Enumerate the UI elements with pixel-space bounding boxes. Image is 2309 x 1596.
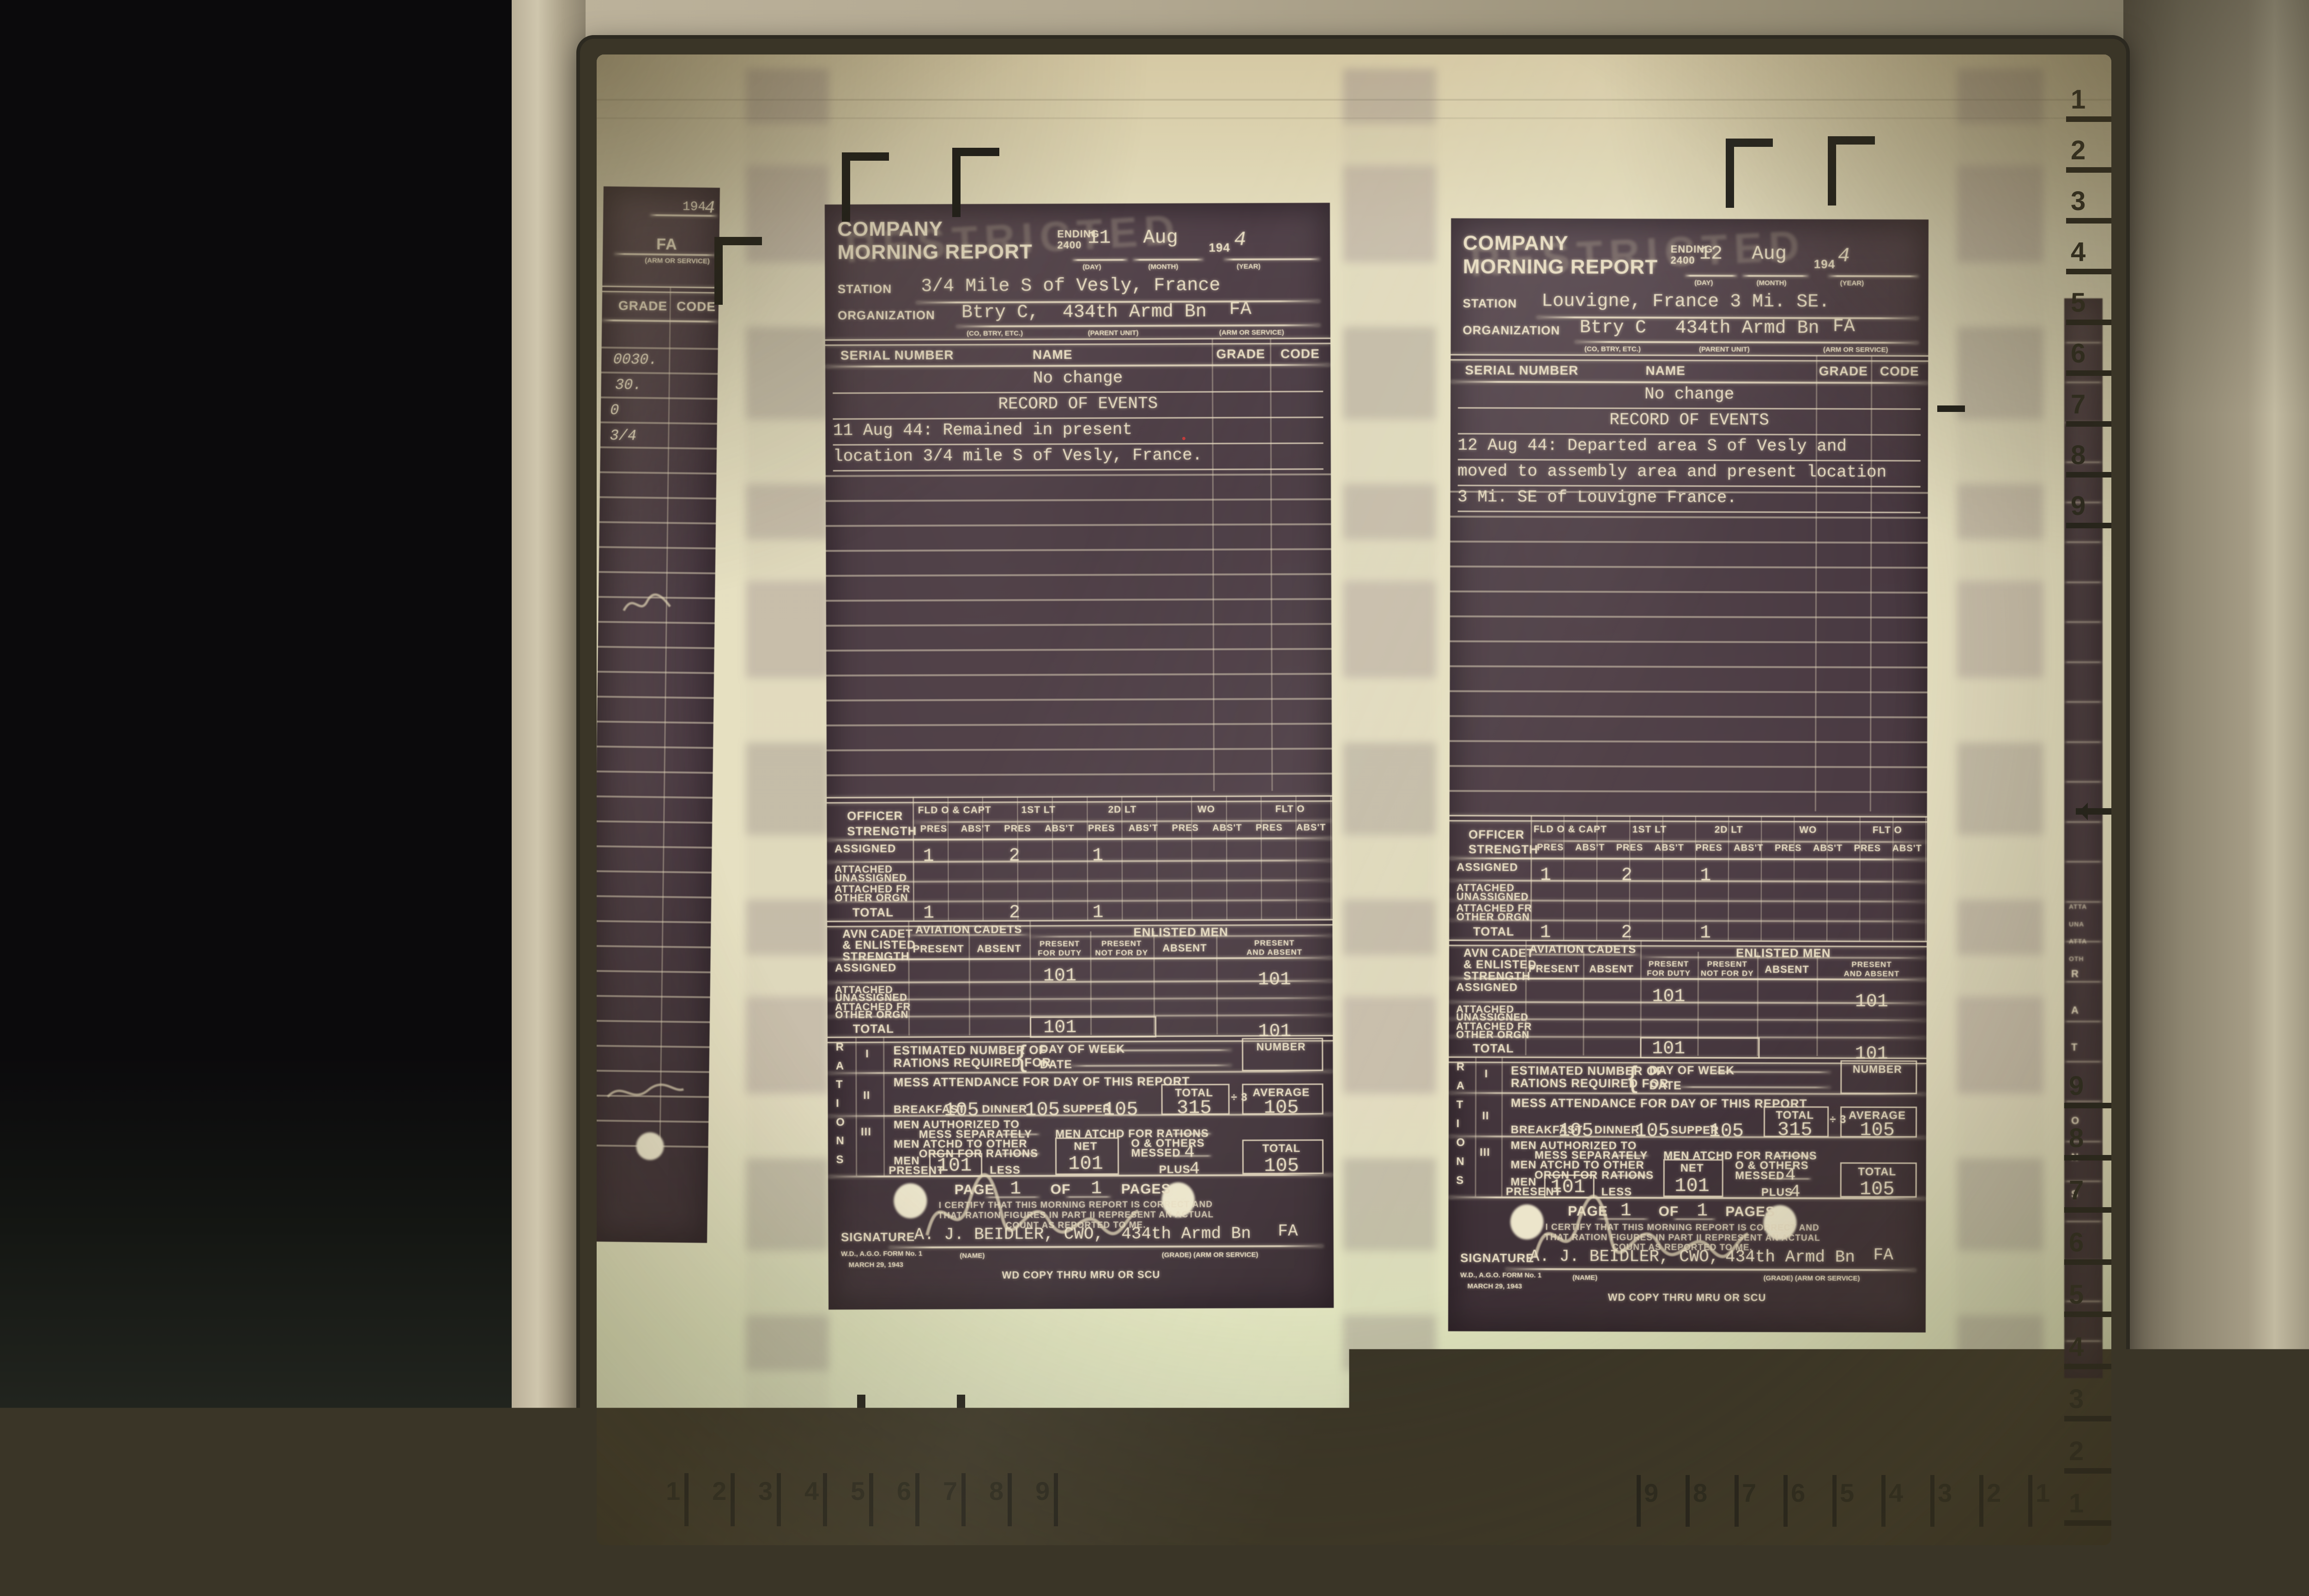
ruler-tick xyxy=(961,1473,966,1526)
machine-left-frame xyxy=(512,0,586,1596)
ruler-tick xyxy=(2064,1259,2111,1265)
ruler-tick xyxy=(1881,1475,1886,1527)
ruler-number: 6 xyxy=(897,1476,911,1506)
ruler-tick xyxy=(2064,1468,2111,1474)
ruler-tick xyxy=(2066,167,2111,173)
ruler-tick xyxy=(1832,1475,1837,1527)
ruler-number: 1 xyxy=(2069,1488,2084,1519)
ruler-number: 3 xyxy=(1938,1478,1952,1508)
ruler-tick xyxy=(2066,116,2111,122)
ruler-tick xyxy=(684,1473,689,1526)
ruler-tick xyxy=(2066,370,2111,376)
ruler-tick xyxy=(1735,1475,1739,1527)
ruler-number: 2 xyxy=(2069,1436,2084,1467)
ruler-tick xyxy=(2066,523,2111,528)
ruler-tick xyxy=(2064,1207,2111,1213)
microfilm-reader-scene: Roll 194 4 FA (ARM OR SERVICE) GRADE COD… xyxy=(0,0,2309,1596)
ruler-number: 8 xyxy=(2071,440,2085,471)
ruler-tick xyxy=(2066,320,2111,325)
ruler-tick xyxy=(1686,1475,1690,1527)
roll-film-button[interactable]: Roll xyxy=(289,1509,368,1596)
ruler-number: 3 xyxy=(758,1476,773,1506)
ruler-number: 3 xyxy=(2071,186,2085,217)
ruler-tick xyxy=(2028,1475,2032,1527)
ruler-number: 5 xyxy=(2071,287,2085,318)
machine-side-panel xyxy=(368,1513,512,1596)
ruler-tick xyxy=(2064,1416,2111,1421)
ruler-number: 1 xyxy=(2071,84,2085,115)
ruler-number: 4 xyxy=(804,1476,819,1506)
ruler-number: 9 xyxy=(1644,1478,1658,1508)
ruler-number: 6 xyxy=(2071,338,2085,369)
ruler-tick xyxy=(777,1473,781,1526)
machine-top-frame xyxy=(512,0,2309,44)
projection-screen: 194 4 FA (ARM OR SERVICE) GRADE CODE 003… xyxy=(597,54,2111,1545)
ruler-tick xyxy=(1783,1475,1788,1527)
ruler-tick xyxy=(731,1473,735,1526)
ruler-number: 3 xyxy=(2069,1384,2084,1415)
ruler-tick xyxy=(1979,1475,1983,1527)
ruler-tick xyxy=(869,1473,873,1526)
light-spill xyxy=(194,1469,305,1596)
ruler-number: 1 xyxy=(666,1476,680,1506)
ruler-number: 6 xyxy=(2069,1227,2084,1258)
ruler-tick xyxy=(1637,1475,1641,1527)
ruler-number: 4 xyxy=(2071,236,2085,267)
ruler-tick xyxy=(823,1473,827,1526)
ruler-number: 5 xyxy=(2069,1279,2084,1310)
ruler-tick xyxy=(2066,218,2111,224)
ruler-number: 1 xyxy=(2036,1478,2050,1508)
ruler-number: 4 xyxy=(1889,1478,1903,1508)
ruler-tick xyxy=(2066,472,2111,478)
ruler-number: 4 xyxy=(2069,1331,2084,1362)
ruler-number: 5 xyxy=(851,1476,865,1506)
ruler-tick xyxy=(1054,1473,1058,1526)
ruler-tick xyxy=(1930,1475,1934,1527)
ruler-number: 9 xyxy=(2069,1070,2084,1101)
ruler-tick xyxy=(2064,1364,2111,1369)
machine-right-shadow xyxy=(2123,0,2309,416)
measurement-rulers: 123456789987654321123456789987654321 xyxy=(597,54,2111,1545)
ruler-tick xyxy=(2066,269,2111,274)
ruler-number: 2 xyxy=(712,1476,726,1506)
dark-room-background xyxy=(0,0,512,1596)
ruler-number: 9 xyxy=(2071,490,2085,521)
ruler-tick xyxy=(915,1473,919,1526)
ruler-tick xyxy=(2066,421,2111,427)
ruler-number: 7 xyxy=(943,1476,957,1506)
ruler-number: 6 xyxy=(1791,1478,1805,1508)
ruler-tick xyxy=(1008,1473,1012,1526)
ruler-number: 2 xyxy=(2071,135,2085,166)
ruler-number: 2 xyxy=(1987,1478,2001,1508)
ruler-number: 9 xyxy=(1035,1476,1050,1506)
ruler-tick xyxy=(2064,1520,2111,1526)
roll-button-label: Roll xyxy=(301,1521,368,1546)
ruler-tick xyxy=(2064,1312,2111,1317)
ruler-number: 8 xyxy=(989,1476,1003,1506)
machine-bottom-frame xyxy=(512,1555,2309,1596)
ruler-number: 8 xyxy=(2069,1123,2084,1154)
ruler-number: 8 xyxy=(1693,1478,1707,1508)
ruler-tick xyxy=(2064,1155,2111,1161)
ruler-number: 5 xyxy=(1840,1478,1854,1508)
ruler-number: 7 xyxy=(2071,389,2085,420)
ruler-tick xyxy=(2064,1103,2111,1108)
ruler-number: 7 xyxy=(1742,1478,1756,1508)
ruler-number: 7 xyxy=(2069,1175,2084,1206)
